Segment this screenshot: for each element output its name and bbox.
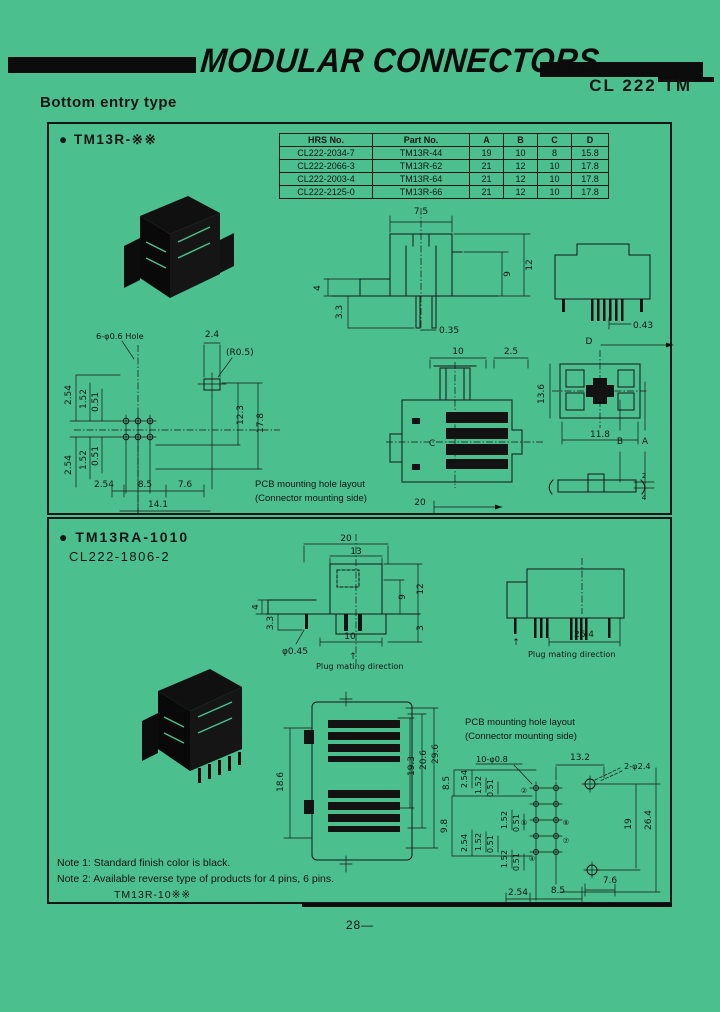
dimension-label: 2 (642, 471, 647, 480)
dimension-label: 7.5 (414, 207, 428, 217)
view-label: C (429, 439, 435, 449)
footer-rule (302, 903, 672, 907)
cell-a: 21 (470, 160, 504, 173)
cell-hrs: CL222-2003-4 (280, 173, 373, 186)
panel2-subtitle: CL222-1806-2 (69, 549, 170, 564)
front-view-drawing: 20 13 9 12 3 4 3.3 10 φ0.45 ↑ Plug matin… (252, 530, 474, 672)
col-part-no: Part No. (373, 134, 470, 147)
dimension-label: 14.1 (148, 500, 168, 510)
cell-a: 19 (470, 147, 504, 160)
dimension-label: 2.5 (504, 347, 518, 357)
dimension-label: 0.51 (91, 392, 101, 412)
dimension-label: 1.52 (473, 776, 483, 794)
dimension-label: 4 (252, 604, 261, 610)
pcb-caption-line2: (Connector mounting side) (255, 492, 367, 506)
cell-part: TM13R-66 (373, 186, 470, 199)
dimension-label: 1.52 (499, 811, 509, 829)
dimension-label: (R0.5) (226, 348, 254, 358)
dimension-label: 3.3 (335, 305, 345, 319)
dimension-label: 9 (503, 271, 513, 277)
cell-a: 21 (470, 173, 504, 186)
cell-c: 10 (538, 173, 572, 186)
cell-hrs: CL222-2066-3 (280, 160, 373, 173)
dimension-label: 3.3 (266, 616, 276, 630)
line-work (555, 244, 673, 348)
dimension-label: 1.52 (79, 389, 89, 409)
pin-number-label: ④ (529, 854, 535, 863)
cell-part: TM13R-44 (373, 147, 470, 160)
connector-photo (90, 180, 240, 320)
hole-note-label: 2-φ2.4 (624, 761, 651, 771)
cell-b: 12 (504, 160, 538, 173)
pin-number-label: ⑦ (563, 836, 569, 845)
dimension-label: 2.54 (64, 385, 74, 405)
cell-part: TM13R-64 (373, 173, 470, 186)
dimension-label: 12 (416, 583, 426, 594)
col-a: A (470, 134, 504, 147)
dimension-label: 1.52 (79, 450, 89, 470)
cell-d: 17.8 (572, 160, 609, 173)
line-work (284, 692, 438, 872)
cell-b: 12 (504, 186, 538, 199)
dimension-label: 1.52 (473, 833, 483, 851)
dimension-label: 12.3 (236, 405, 246, 425)
pcb-hole-layout-drawing: 10-φ0.8 13.2 2-φ2.4 8.5 9.8 2.54 1.52 0.… (440, 752, 682, 906)
cell-c: 10 (538, 160, 572, 173)
dimension-label: 0.51 (511, 814, 521, 832)
col-b: B (504, 134, 538, 147)
dimension-label: φ0.45 (282, 647, 308, 657)
dimension-label: 2.54 (64, 455, 74, 475)
dimension-label: 18.6 (276, 772, 286, 792)
cell-d: 15.8 (572, 147, 609, 160)
dimension-label: 2.54 (459, 770, 469, 788)
dimension-label: 19.3 (407, 756, 417, 776)
section-subtitle: Bottom entry type (40, 94, 177, 111)
dimension-label: 10 (344, 632, 356, 642)
table-header-row: HRS No. Part No. A B C D (280, 134, 609, 147)
pin-number-label: ② (521, 786, 527, 795)
connector-photo (114, 647, 259, 802)
dimension-label: 7.6 (603, 876, 618, 886)
dimension-label: 2.54 (94, 480, 114, 490)
dimension-label: 1.52 (499, 850, 509, 868)
pin-number-label: ⑧ (563, 818, 570, 827)
dimension-label: 0.51 (485, 779, 495, 797)
cell-b: 12 (504, 173, 538, 186)
cell-hrs: CL222-2034-7 (280, 147, 373, 160)
dimension-label: 26.4 (574, 630, 594, 640)
dimension-label: 2.54 (508, 888, 528, 898)
table-row: CL222-2034-7 TM13R-44 19 10 8 15.8 (280, 147, 609, 160)
pcb-caption: PCB mounting hole layout (Connector moun… (255, 478, 367, 506)
dimension-label: 4 (313, 285, 323, 291)
view-label: B (617, 437, 623, 447)
pcb-caption: PCB mounting hole layout (Connector moun… (465, 716, 577, 744)
dimension-label: 20 (414, 498, 426, 508)
col-hrs-no: HRS No. (280, 134, 373, 147)
dimension-label: 12 (525, 259, 535, 270)
dimension-label: 2.54 (459, 834, 469, 852)
dimension-label: 20.6 (419, 750, 429, 770)
dimension-label: 8.5 (442, 776, 452, 790)
note-1: Note 1: Standard finish color is black. (57, 855, 334, 871)
bottom-view-drawing: 10 2.5 C B A 13.6 11.8 2 4 20 (382, 342, 674, 518)
dimension-label: 20 (340, 534, 352, 544)
cell-d: 17.8 (572, 173, 609, 186)
col-c: C (538, 134, 572, 147)
dimension-label: 13.2 (570, 753, 590, 763)
line-work (452, 764, 660, 905)
header-bar-left (8, 57, 196, 73)
hole-note-label: 10-φ0.8 (476, 754, 508, 764)
panel1-title: ● TM13R-※※ (59, 132, 157, 148)
cell-c: 8 (538, 147, 572, 160)
dimension-label: 17.8 (256, 413, 266, 433)
note-3: TM13R-10※※ (114, 887, 334, 903)
cell-a: 21 (470, 186, 504, 199)
mating-caption: Plug mating direction (316, 661, 404, 671)
product-code: CL 222 TM (589, 76, 692, 96)
dimension-label: 9 (398, 594, 408, 600)
cell-b: 10 (504, 147, 538, 160)
dimension-label: 0.51 (91, 446, 101, 466)
side-view-drawing: 0.43 D (547, 197, 679, 349)
dimension-label: 13.6 (537, 384, 547, 404)
spec-table: HRS No. Part No. A B C D CL222-2034-7 TM… (279, 133, 609, 199)
dimension-label: 7.6 (178, 480, 193, 490)
side-view-drawing: 26.4 ↑ Plug mating direction (494, 544, 679, 666)
page-number: 28— (0, 918, 720, 932)
dimension-label: 0.51 (485, 835, 495, 853)
dimension-label: 0.51 (511, 853, 521, 871)
page-title: MODULAR CONNECTORS (199, 42, 539, 81)
table-row: CL222-2066-3 TM13R-62 21 12 10 17.8 (280, 160, 609, 173)
catalog-page: MODULAR CONNECTORS CL 222 TM Bottom entr… (0, 0, 720, 1012)
photo-shape (124, 196, 234, 298)
view-label: A (642, 437, 649, 447)
mating-caption: Plug mating direction (528, 649, 616, 659)
front-view-drawing: 7.5 12 9 4 3.3 0.35 (302, 204, 547, 336)
pcb-caption-line1: PCB mounting hole layout (465, 716, 577, 730)
panel-tm13ra: ● TM13RA-1010 CL222-1806-2 (47, 517, 672, 904)
cell-part: TM13R-62 (373, 160, 470, 173)
dimension-label: 0.43 (633, 321, 653, 331)
hole-note-label: 6-φ0.6 Hole (96, 331, 144, 341)
mating-arrow: ↑ (512, 638, 520, 648)
dimension-label: 26.4 (644, 810, 654, 830)
dimension-label: 10 (452, 347, 464, 357)
col-d: D (572, 134, 609, 147)
cell-hrs: CL222-2125-0 (280, 186, 373, 199)
photo-shape (142, 669, 242, 783)
dimension-label: 4 (642, 493, 647, 502)
dimension-label: 8.5 (551, 886, 565, 896)
section-view-drawing: 18.6 19.3 20.6 29.6 (258, 688, 458, 878)
panel-tm13r: ● TM13R-※※ HRS No. Part No. A B C D CL22… (47, 122, 672, 515)
dimension-label: 0.35 (439, 326, 459, 336)
line-work (324, 208, 530, 332)
pcb-caption-line2: (Connector mounting side) (465, 730, 577, 744)
dimension-label: 11.8 (590, 430, 610, 440)
dimension-label: 9.8 (440, 819, 450, 834)
dimension-label: 8.5 (138, 480, 152, 490)
panel2-title: ● TM13RA-1010 (59, 529, 189, 545)
dimension-label: 13 (350, 547, 361, 557)
dimension-label: 19 (624, 818, 634, 830)
dimension-label: 3 (416, 625, 426, 631)
table-row: CL222-2003-4 TM13R-64 21 12 10 17.8 (280, 173, 609, 186)
notes-block: Note 1: Standard finish color is black. … (57, 855, 334, 903)
pin-number-label: ⑤ (521, 818, 528, 827)
dimension-label: 2.4 (205, 330, 220, 340)
line-work (507, 558, 624, 646)
line-work (386, 350, 654, 513)
pcb-caption-line1: PCB mounting hole layout (255, 478, 367, 492)
note-2: Note 2: Available reverse type of produc… (57, 871, 334, 887)
